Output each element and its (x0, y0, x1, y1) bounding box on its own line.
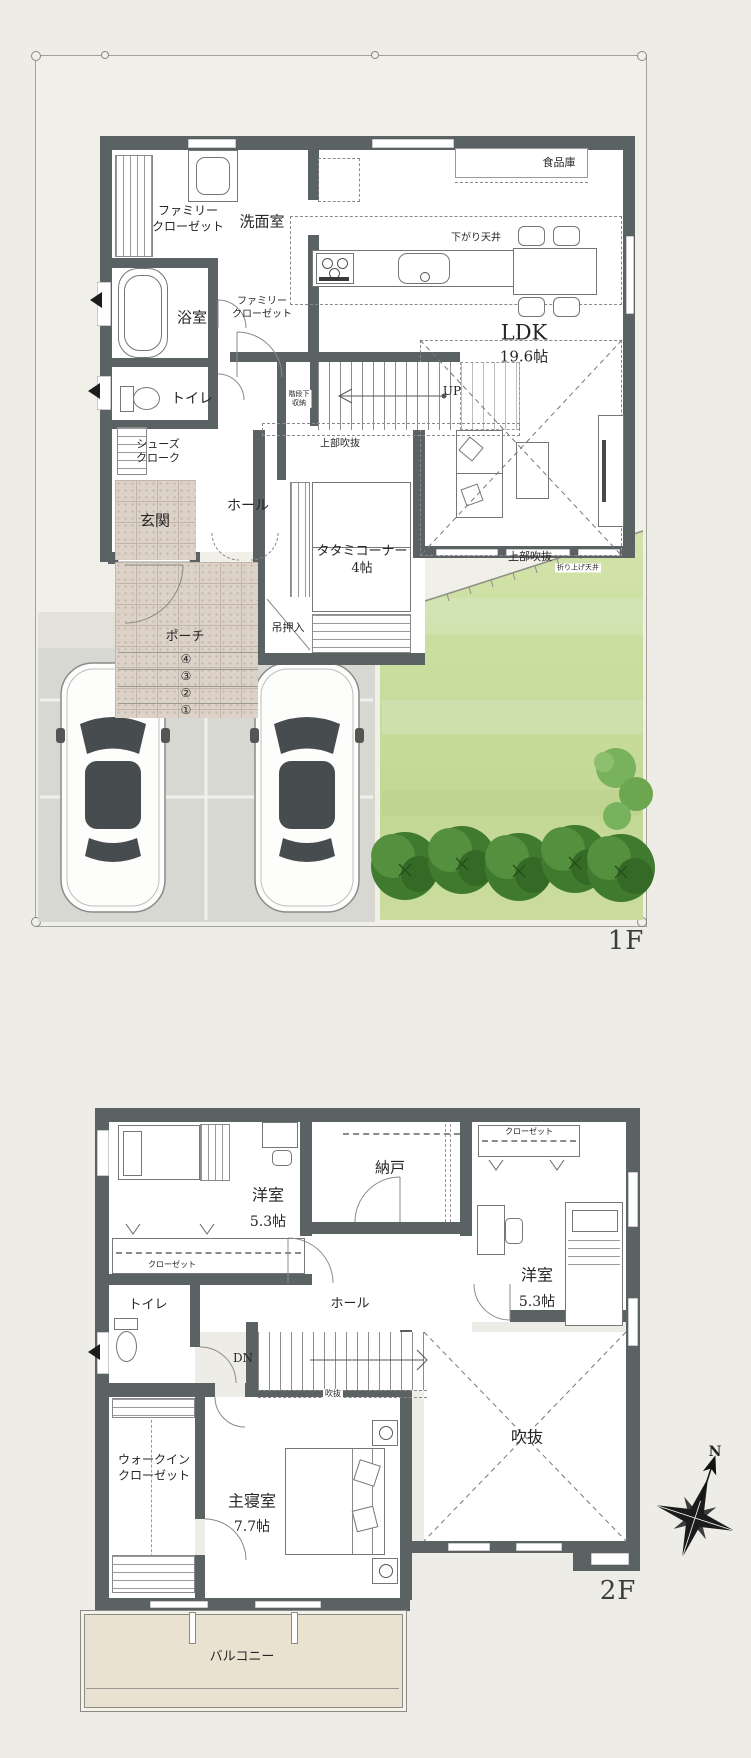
burner (322, 258, 333, 269)
porch-step-line (118, 669, 258, 670)
toilet-tank-1f (120, 386, 134, 412)
stairs-void-band-2f (258, 1390, 427, 1398)
chair-right (505, 1218, 523, 1244)
dining-chair (553, 226, 580, 246)
hanging-closet-floor (267, 597, 310, 651)
window (97, 1130, 109, 1176)
room-floor (312, 1122, 460, 1234)
window (97, 1332, 109, 1374)
wall-segment (195, 1397, 205, 1519)
stair-void-band (262, 423, 520, 436)
sofa-seam (457, 473, 502, 474)
bed-seam (352, 1449, 353, 1554)
window (628, 1172, 638, 1227)
wic-shelf (112, 1555, 195, 1593)
pantry-door-dash (455, 182, 588, 183)
stairs-2f (258, 1332, 427, 1390)
balcony-deck (80, 1610, 407, 1712)
lamp (379, 1426, 393, 1440)
shoe-shelf (117, 427, 147, 475)
wall-segment (253, 653, 425, 665)
porch-step-line (118, 686, 258, 687)
wall-segment (190, 1285, 200, 1347)
window (97, 282, 111, 326)
survey-marker (31, 51, 41, 61)
tatami-mat (312, 547, 411, 612)
wall-segment (95, 1274, 312, 1285)
window (591, 1553, 629, 1565)
tv-screen (602, 440, 606, 502)
bathtub-inner (124, 275, 162, 351)
closet-rod (116, 1252, 301, 1254)
toilet-bowl-1f (133, 387, 160, 410)
stove-panel (319, 277, 349, 281)
wic-shelf (112, 1398, 195, 1418)
wall-segment (95, 1108, 640, 1122)
survey-marker (637, 917, 647, 927)
room-floor (424, 1332, 626, 1541)
window (372, 139, 454, 148)
wall-segment (112, 358, 218, 367)
porch-step-line (118, 703, 258, 704)
balcony-inner-line (86, 1688, 399, 1689)
refrigerator-space (318, 158, 360, 202)
desk-right (477, 1205, 505, 1255)
window (626, 236, 634, 314)
chair-left (272, 1150, 292, 1166)
pillow (123, 1131, 142, 1176)
window (448, 1543, 490, 1551)
dining-chair (518, 226, 545, 246)
window (188, 139, 236, 148)
survey-marker (371, 51, 379, 59)
survey-marker (101, 51, 109, 59)
wall-segment (95, 1383, 215, 1397)
tatami-mat (312, 482, 411, 548)
wall-segment (208, 358, 218, 428)
survey-marker (637, 51, 647, 61)
wall-segment (246, 1322, 258, 1392)
porch-step-line (118, 652, 258, 653)
window (97, 376, 111, 410)
washbasin-bowl (196, 157, 230, 195)
floor-label-1f: 1F (608, 925, 645, 959)
wall-segment (300, 1222, 472, 1234)
pillow (572, 1210, 618, 1232)
family-closet-shelf (115, 155, 153, 257)
wall-segment (310, 362, 318, 426)
window (628, 1298, 638, 1346)
wall-segment (208, 258, 218, 368)
blanket-stripes (568, 1240, 620, 1268)
wall-segment (623, 136, 635, 558)
wardrobe-left (200, 1124, 230, 1181)
wall-segment (460, 1122, 472, 1236)
coffee-table (516, 442, 549, 499)
wall-segment (195, 1555, 205, 1598)
balcony-post (189, 1612, 196, 1644)
dining-table (513, 248, 597, 295)
stairs-1f (318, 362, 460, 430)
toilet-tank-2f (114, 1318, 138, 1330)
room-floor (109, 1285, 460, 1332)
closet-left-box (112, 1238, 305, 1274)
closet-rod (482, 1140, 576, 1142)
porch-tile-floor (115, 562, 258, 718)
compass-rose (642, 1442, 751, 1571)
wall-segment (112, 258, 218, 268)
floorplan-canvas: ファミリー クローゼット 洗面室 浴室 ファミリー クローゼット トイレ シュー… (0, 0, 751, 1758)
toilet-bowl-2f (116, 1331, 137, 1362)
pantry-box (455, 148, 588, 178)
wall-segment (300, 1122, 312, 1236)
stair-storage-floor (288, 372, 310, 424)
balcony-post (291, 1612, 298, 1644)
faucet (420, 272, 430, 282)
storage-rod (343, 1133, 460, 1135)
stairs-1f-upper-dashed (460, 362, 520, 430)
dining-chair (553, 297, 580, 317)
window (150, 1601, 208, 1608)
desk-left (262, 1122, 298, 1148)
compass-north-label: N (709, 1443, 722, 1461)
wall-segment (277, 362, 286, 480)
lamp (379, 1564, 393, 1578)
storage-partition-dash (445, 1124, 451, 1222)
floor-label-2f: 2F (600, 1575, 637, 1609)
window (516, 1543, 562, 1551)
entrance-tile-floor (115, 480, 196, 560)
window (255, 1601, 321, 1608)
dining-chair (518, 297, 545, 317)
tatami-step (312, 614, 411, 653)
wall-segment (100, 136, 112, 562)
survey-marker (31, 917, 41, 927)
stove (316, 253, 354, 284)
tatami-closet-panel (290, 482, 310, 612)
burner (337, 258, 348, 269)
